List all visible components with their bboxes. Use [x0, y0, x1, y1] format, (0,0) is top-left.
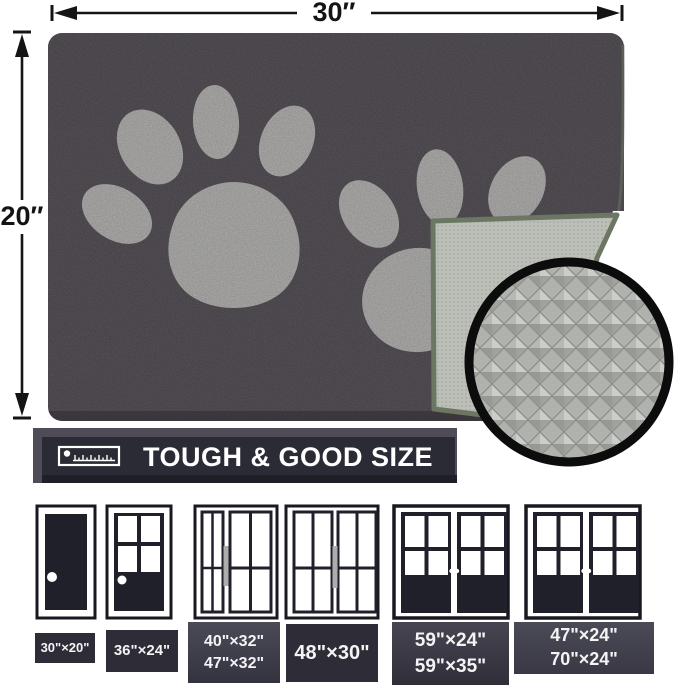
door-with-sidelight — [195, 506, 277, 618]
backing-texture-inset — [469, 262, 669, 462]
door-size-label-4: 48"×30" — [286, 624, 378, 682]
size-text: 70"×24" — [514, 648, 654, 672]
door-french-double-wide — [526, 506, 640, 618]
size-text: 59"×35" — [392, 654, 509, 679]
door-size-label-2: 36"×24" — [106, 630, 178, 672]
size-text: 36"×24" — [106, 641, 178, 661]
size-text: 30"×20" — [35, 639, 95, 656]
door-size-label-1: 30"×20" — [35, 633, 95, 663]
door-double-glass — [286, 506, 378, 618]
door-half-glass — [107, 506, 171, 618]
size-text: 59"×24" — [392, 628, 509, 653]
size-text: 40"×32" — [188, 631, 280, 652]
size-text: 47"×32" — [188, 653, 280, 674]
product-image-canvas: 30″ 20″ TOUGH & GOOD SIZE 30"×20" 36"×24… — [0, 0, 679, 688]
product-graphic — [0, 0, 679, 688]
size-text: 48"×30" — [286, 640, 378, 666]
size-text: 47"×24" — [514, 624, 654, 648]
door-size-label-3: 40"×32" 47"×32" — [188, 622, 280, 683]
door-size-label-6: 47"×24" 70"×24" — [514, 622, 654, 674]
width-dimension-label: 30″ — [297, 0, 371, 29]
door-size-label-5: 59"×24" 59"×35" — [392, 622, 509, 685]
height-dimension-label: 20″ — [0, 201, 46, 233]
door-single-solid — [37, 506, 95, 618]
banner-title: TOUGH & GOOD SIZE — [127, 441, 449, 474]
door-french-double — [394, 506, 508, 618]
